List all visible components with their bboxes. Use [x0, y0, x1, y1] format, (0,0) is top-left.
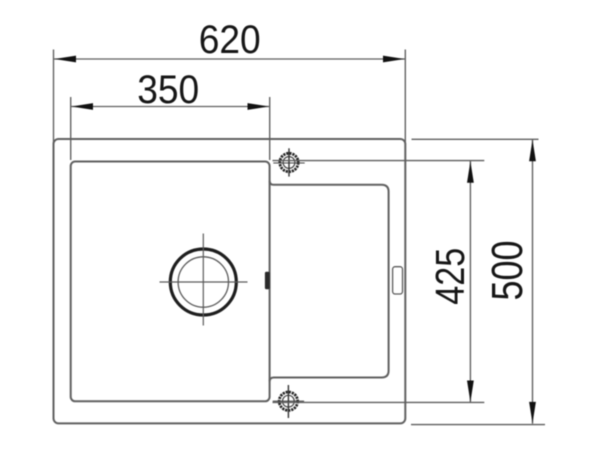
svg-text:620: 620	[199, 18, 261, 62]
svg-text:500: 500	[484, 241, 532, 301]
svg-text:350: 350	[137, 68, 199, 112]
svg-text:425: 425	[427, 248, 473, 305]
